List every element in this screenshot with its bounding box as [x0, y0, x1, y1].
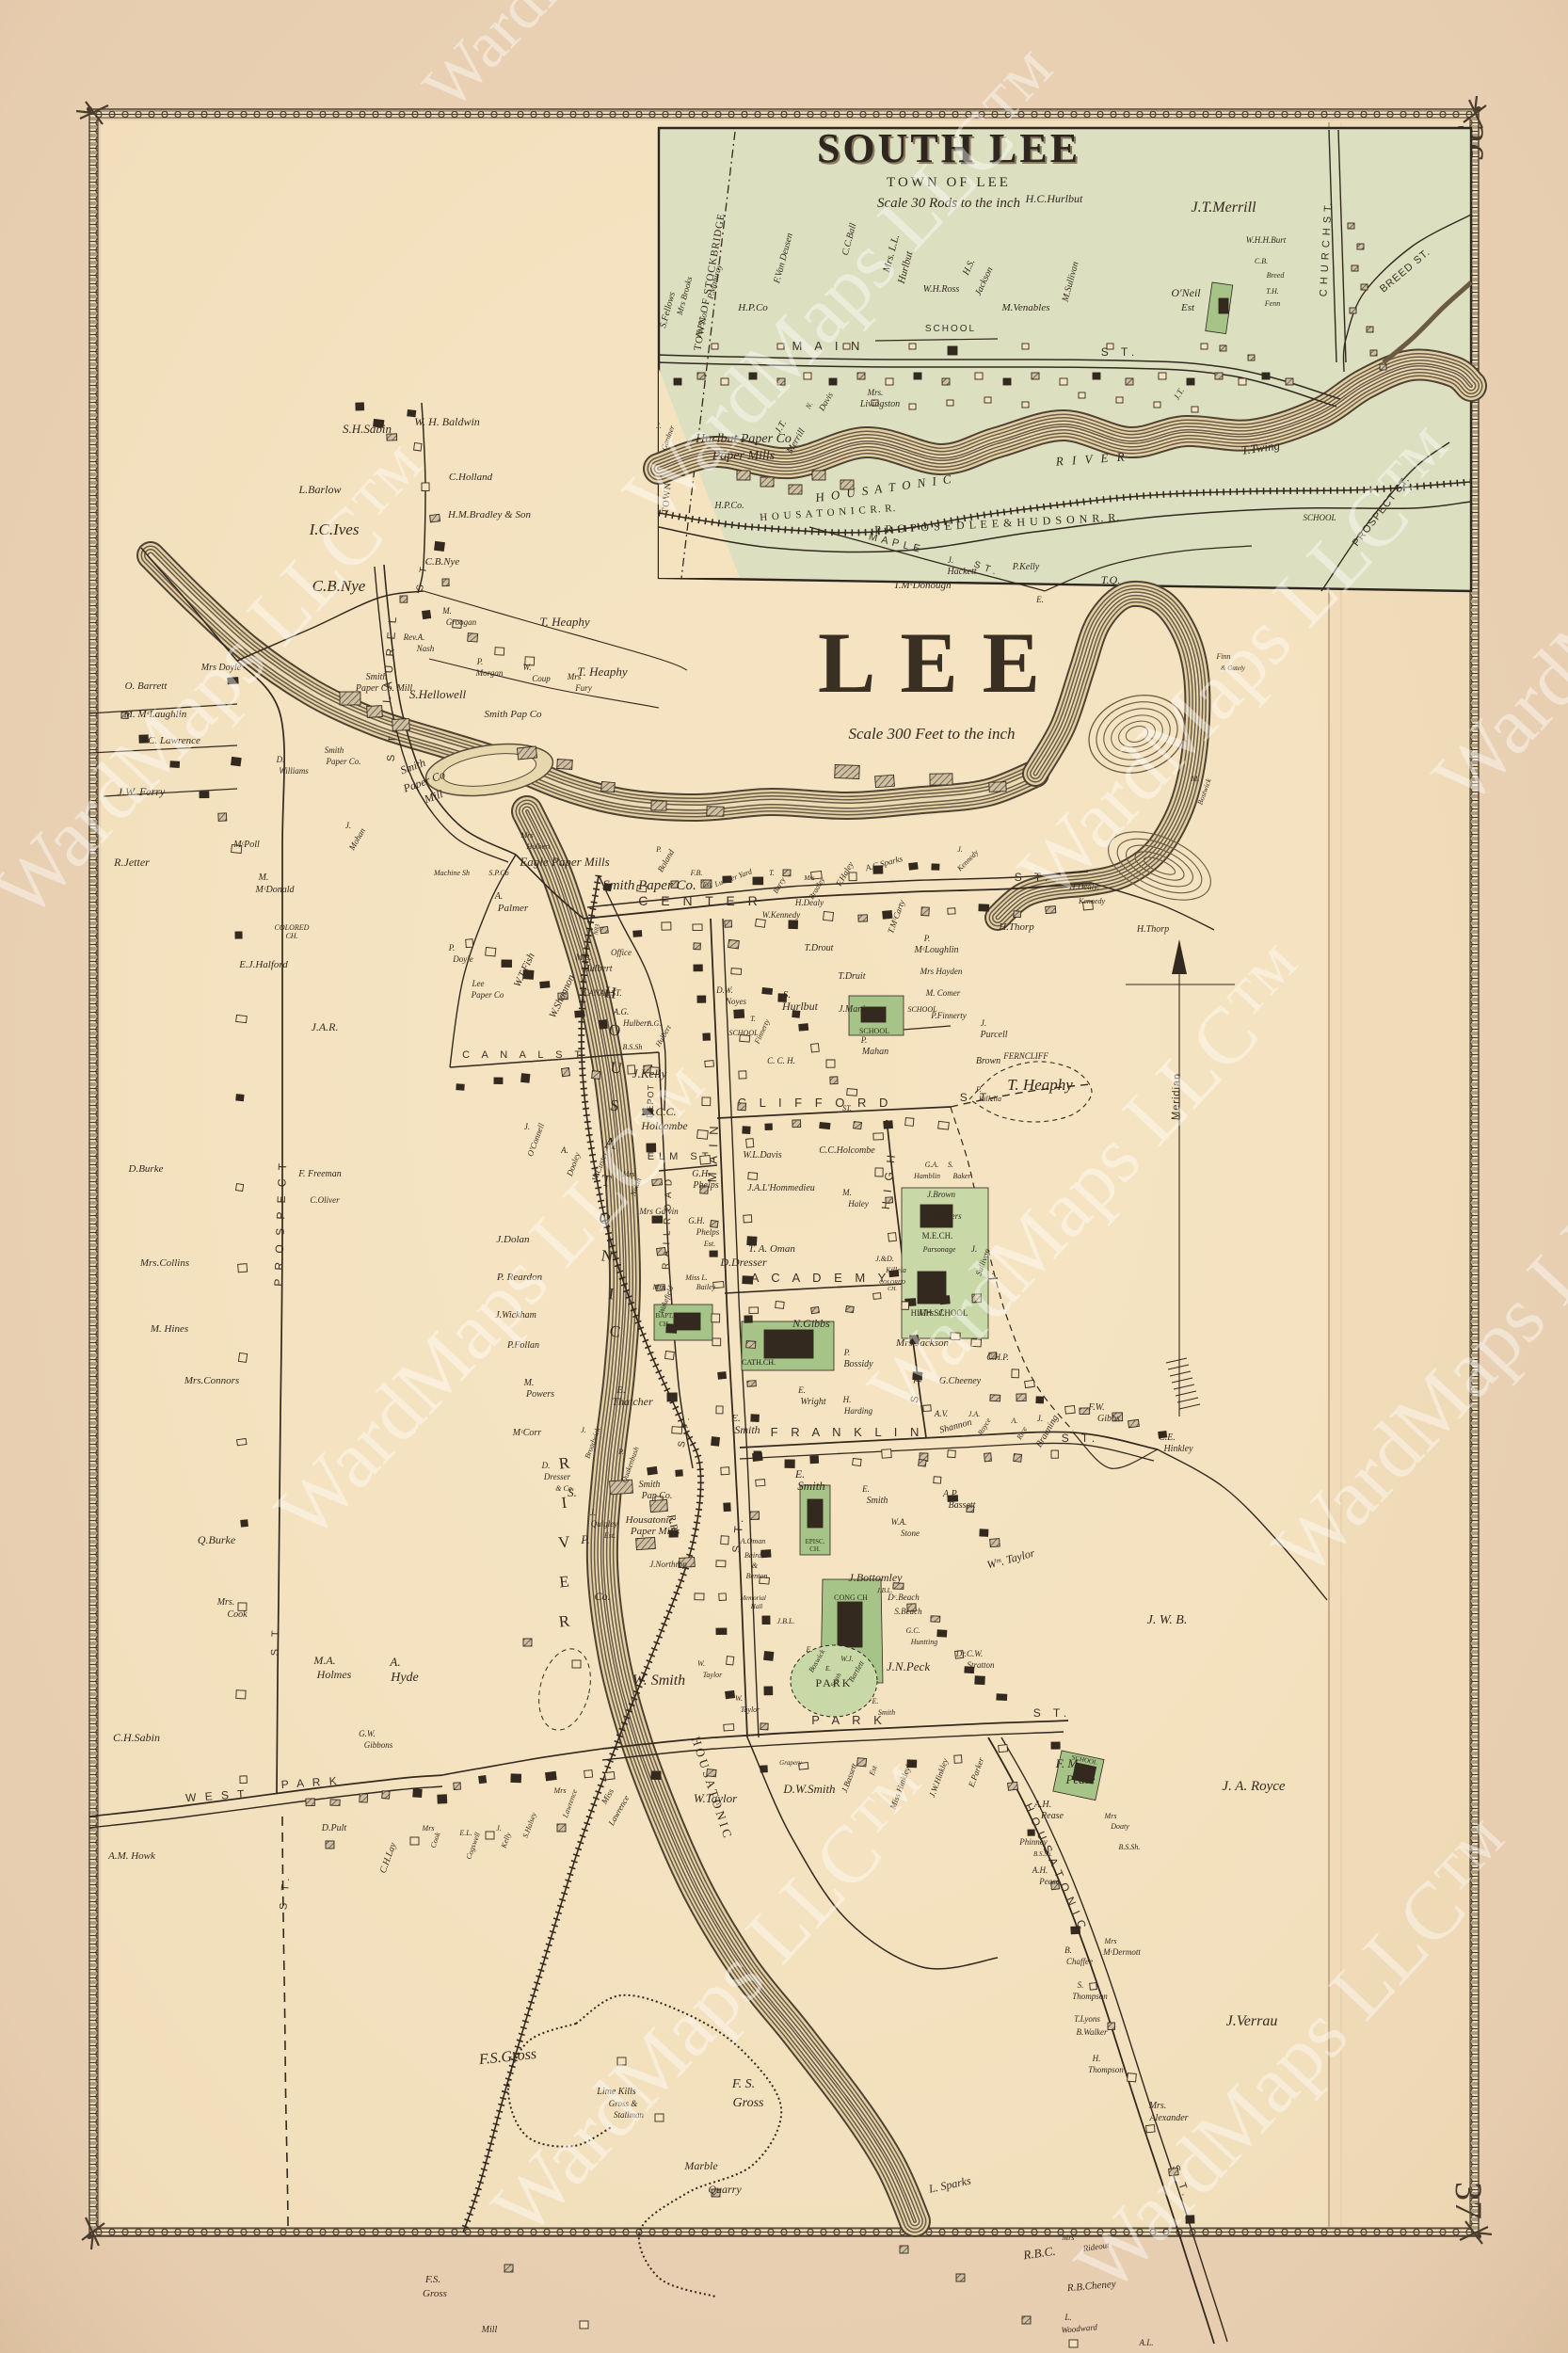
- svg-text:A.Oman: A.Oman: [740, 1537, 765, 1545]
- svg-text:C.C.Holcombe: C.C.Holcombe: [819, 1145, 875, 1156]
- svg-text:CATH.CH.: CATH.CH.: [742, 1358, 776, 1367]
- svg-text:Mrs: Mrs: [422, 1824, 435, 1833]
- svg-text:M.E.CH.: M.E.CH.: [922, 1231, 953, 1241]
- svg-text:F.S.: F.S.: [424, 2274, 440, 2285]
- svg-text:J.: J.: [948, 555, 953, 565]
- svg-text:J.&D.: J.&D.: [875, 1255, 894, 1263]
- svg-text:Co.: Co.: [594, 1590, 610, 1603]
- svg-text:MᶜDermott: MᶜDermott: [1102, 1947, 1141, 1957]
- svg-text:Williams: Williams: [279, 766, 309, 776]
- svg-text:&: &: [752, 1561, 759, 1570]
- svg-text:Cook: Cook: [227, 1609, 248, 1620]
- svg-text:B.: B.: [1064, 1945, 1072, 1955]
- svg-text:S.Meyers: S.Meyers: [930, 1211, 962, 1221]
- svg-text:P.Kelly: P.Kelly: [1012, 562, 1040, 572]
- svg-text:A.H.: A.H.: [1032, 1865, 1048, 1875]
- svg-text:D.W.Smith: D.W.Smith: [782, 1782, 835, 1796]
- svg-text:Killela: Killela: [885, 1266, 906, 1274]
- svg-text:Fenn: Fenn: [1264, 299, 1280, 308]
- svg-text:D.Dresser: D.Dresser: [719, 1256, 767, 1269]
- svg-text:A.: A.: [389, 1655, 400, 1669]
- svg-text:P.: P.: [860, 1035, 868, 1045]
- svg-text:EPISC.: EPISC.: [806, 1538, 825, 1545]
- svg-text:C L I F F O R D: C L I F F O R D: [738, 1096, 893, 1110]
- svg-text:W.L.Davis: W.L.Davis: [743, 1150, 781, 1160]
- svg-text:Baird: Baird: [744, 1551, 762, 1560]
- svg-text:MᶜDonald: MᶜDonald: [255, 885, 296, 895]
- svg-text:Harding: Harding: [843, 1406, 873, 1416]
- svg-text:Dresser: Dresser: [543, 1472, 571, 1481]
- svg-text:T.Druit: T.Druit: [839, 971, 866, 982]
- svg-text:Stone: Stone: [901, 1529, 920, 1538]
- svg-text:F R A N K L I N: F R A N K L I N: [771, 1425, 924, 1439]
- svg-text:W.A.: W.A.: [891, 1517, 907, 1527]
- svg-text:S T.: S T.: [1062, 1432, 1099, 1445]
- svg-text:C.E.: C.E.: [1159, 1433, 1176, 1443]
- svg-text:E.: E.: [1035, 595, 1044, 604]
- svg-text:S.: S.: [948, 1160, 953, 1169]
- svg-text:O: O: [608, 1020, 622, 1040]
- svg-text:P.: P.: [843, 1348, 851, 1357]
- svg-text:Baker: Baker: [952, 1172, 971, 1180]
- svg-text:Est.: Est.: [703, 1240, 715, 1248]
- svg-text:E: E: [558, 1573, 569, 1592]
- svg-text:MᶜPoll: MᶜPoll: [232, 840, 260, 850]
- svg-text:Killella: Killella: [978, 1095, 1001, 1103]
- svg-text:E.: E.: [797, 1385, 806, 1395]
- svg-text:Mrs.: Mrs.: [575, 952, 592, 962]
- svg-text:Smith: Smith: [734, 1423, 760, 1436]
- svg-text:Phelps: Phelps: [696, 1227, 720, 1237]
- svg-text:Paper Co: Paper Co: [471, 990, 504, 1000]
- svg-text:E.: E.: [824, 1665, 831, 1673]
- svg-text:Hinkley: Hinkley: [1162, 1444, 1193, 1454]
- svg-text:T. Heaphy: T. Heaphy: [539, 615, 589, 629]
- svg-text:Q.Burke: Q.Burke: [198, 1533, 236, 1546]
- svg-text:Hamblin: Hamblin: [913, 1172, 940, 1180]
- svg-text:Paper Mills: Paper Mills: [630, 1526, 680, 1537]
- svg-text:M.Venables: M.Venables: [1000, 302, 1049, 313]
- svg-text:Brown: Brown: [976, 1056, 1000, 1066]
- svg-text:T.Q.: T.Q.: [1101, 573, 1120, 586]
- svg-text:P.: P.: [923, 934, 931, 943]
- svg-text:Mrs.: Mrs.: [1148, 2101, 1167, 2111]
- svg-text:G.H.: G.H.: [692, 1169, 710, 1179]
- svg-text:Hackett: Hackett: [946, 567, 976, 577]
- svg-text:Mrs.Collins: Mrs.Collins: [139, 1257, 189, 1269]
- svg-text:W. Smith: W. Smith: [632, 1673, 685, 1689]
- svg-text:E.: E.: [861, 1484, 870, 1494]
- svg-text:J.A.R.: J.A.R.: [312, 1020, 339, 1033]
- svg-text:A.G.: A.G.: [647, 1019, 662, 1028]
- svg-text:J.N.Peck: J.N.Peck: [887, 1659, 930, 1673]
- svg-text:Hulbert: Hulbert: [622, 1018, 649, 1028]
- svg-text:J.A.: J.A.: [968, 1410, 980, 1418]
- svg-text:Livingston: Livingston: [859, 399, 900, 409]
- svg-text:Haley: Haley: [847, 1199, 869, 1209]
- svg-text:Parsonage: Parsonage: [922, 1245, 956, 1254]
- svg-text:Purcell: Purcell: [979, 1030, 1007, 1040]
- svg-text:Smith: Smith: [878, 1708, 895, 1717]
- svg-text:S.P.Co: S.P.Co: [488, 869, 508, 877]
- svg-text:Benton: Benton: [746, 1572, 768, 1580]
- svg-text:J.: J.: [581, 1426, 586, 1434]
- svg-text:SCHOOL: SCHOOL: [925, 324, 976, 334]
- svg-text:H.: H.: [842, 1395, 852, 1404]
- svg-text:O'Neil: O'Neil: [1171, 286, 1201, 299]
- svg-text:B.Walker: B.Walker: [1077, 2027, 1108, 2037]
- svg-text:J. A. Royce: J. A. Royce: [1222, 1779, 1286, 1794]
- svg-text:H.P.Co.: H.P.Co.: [713, 501, 744, 511]
- svg-text:Eagle Paper Mills: Eagle Paper Mills: [519, 855, 609, 869]
- svg-text:F.W.: F.W.: [1087, 1402, 1104, 1413]
- svg-text:Thompson: Thompson: [1088, 2065, 1124, 2074]
- svg-text:Est.: Est.: [702, 881, 713, 888]
- svg-text:T. Heaphy: T. Heaphy: [577, 664, 627, 679]
- svg-text:G.W.: G.W.: [359, 1729, 376, 1738]
- svg-text:M.: M.: [841, 1188, 852, 1197]
- svg-text:Hulbert: Hulbert: [582, 964, 612, 974]
- svg-text:Machine Sh: Machine Sh: [433, 869, 470, 877]
- svg-text:Taylor: Taylor: [741, 1705, 760, 1714]
- svg-text:M.: M.: [258, 872, 269, 883]
- svg-text:Hulbert: Hulbert: [526, 842, 552, 851]
- svg-text:F. M.: F. M.: [1055, 1756, 1081, 1770]
- svg-text:Quigley: Quigley: [591, 1519, 618, 1529]
- svg-text:Mrs.Connors: Mrs.Connors: [184, 1375, 239, 1386]
- svg-text:J.T.Merrill: J.T.Merrill: [1191, 200, 1256, 216]
- svg-text:Palmer: Palmer: [497, 903, 529, 914]
- svg-text:G.C.: G.C.: [905, 1626, 920, 1635]
- svg-text:F.B.: F.B.: [690, 869, 703, 877]
- svg-text:ST.: ST.: [842, 1104, 852, 1112]
- svg-text:MᶜCorr: MᶜCorr: [512, 1428, 542, 1438]
- svg-text:FERNCLIFF: FERNCLIFF: [1002, 1051, 1048, 1061]
- svg-text:Doaty: Doaty: [1110, 1822, 1129, 1831]
- svg-text:E.L.: E.L.: [458, 1829, 472, 1837]
- svg-text:A.G.: A.G.: [613, 1007, 630, 1016]
- svg-text:P.: P.: [476, 657, 484, 666]
- svg-text:J.B.L.: J.B.L.: [777, 1617, 795, 1625]
- svg-text:P.: P.: [448, 943, 456, 952]
- svg-text:Bailey: Bailey: [696, 1283, 716, 1291]
- svg-text:SCHOOL: SCHOOL: [728, 1029, 759, 1037]
- svg-text:W.H.H.Burt: W.H.H.Burt: [1246, 235, 1287, 245]
- svg-text:G.A.: G.A.: [925, 1160, 939, 1169]
- svg-text:Nash: Nash: [416, 644, 435, 653]
- svg-text:T.: T.: [750, 1015, 756, 1023]
- svg-text:H.Dealy: H.Dealy: [794, 898, 824, 907]
- svg-text:A.M. Howk: A.M. Howk: [107, 1850, 156, 1862]
- svg-text:G.H.: G.H.: [688, 1216, 705, 1225]
- svg-text:W.: W.: [523, 663, 532, 672]
- svg-text:Smith Pap Co: Smith Pap Co: [484, 709, 542, 720]
- svg-text:J.Bottomley: J.Bottomley: [849, 1571, 904, 1584]
- svg-text:Phelps: Phelps: [692, 1180, 718, 1191]
- svg-text:Thompson: Thompson: [1072, 1992, 1108, 2001]
- svg-text:Lee: Lee: [472, 979, 485, 988]
- svg-text:C.H.Sabin: C.H.Sabin: [113, 1731, 160, 1744]
- svg-text:D.Burke: D.Burke: [128, 1163, 164, 1175]
- svg-text:W.Kennedy: W.Kennedy: [762, 910, 800, 920]
- svg-text:Mrs: Mrs: [803, 874, 815, 882]
- svg-text:S T.: S T.: [269, 1619, 281, 1656]
- svg-text:J. W. B.: J. W. B.: [1147, 1613, 1188, 1627]
- svg-text:T.Drout: T.Drout: [805, 943, 834, 953]
- svg-text:D.Pult: D.Pult: [321, 1823, 347, 1833]
- svg-text:J.Northrop: J.Northrop: [649, 1560, 687, 1569]
- svg-text:A.H.: A.H.: [1033, 1800, 1051, 1810]
- svg-text:A.: A.: [1011, 1417, 1018, 1425]
- svg-text:M.A.: M.A.: [312, 1654, 335, 1667]
- svg-text:Dr.C.W.: Dr.C.W.: [955, 1649, 984, 1658]
- svg-text:H.Thorp: H.Thorp: [1136, 924, 1169, 935]
- svg-text:Taylor: Taylor: [703, 1671, 723, 1679]
- svg-text:C.B.Nye: C.B.Nye: [425, 556, 460, 568]
- svg-text:Smith: Smith: [325, 745, 344, 755]
- svg-text:W.H.Ross: W.H.Ross: [923, 284, 960, 295]
- svg-text:H.M.Bradley & Son: H.M.Bradley & Son: [447, 509, 531, 520]
- svg-text:S T.: S T.: [1033, 1706, 1071, 1720]
- svg-text:D.: D.: [276, 755, 285, 764]
- svg-text:C.Holland: C.Holland: [449, 472, 493, 483]
- svg-text:Mrs: Mrs: [553, 1786, 567, 1795]
- svg-text:Stratton: Stratton: [967, 1660, 995, 1670]
- svg-text:J.: J.: [345, 821, 351, 830]
- svg-text:B.S.Sh: B.S.Sh: [623, 1043, 643, 1051]
- svg-text:P.: P.: [580, 1532, 590, 1546]
- svg-text:F. Freeman: F. Freeman: [297, 1169, 342, 1179]
- svg-text:LEE: LEE: [818, 615, 1064, 711]
- svg-text:C A N A L S T.: C A N A L S T.: [462, 1049, 592, 1061]
- svg-text:Housatonic: Housatonic: [625, 1514, 674, 1526]
- svg-text:M.: M.: [441, 606, 452, 616]
- svg-text:H.: H.: [1092, 2054, 1101, 2063]
- svg-text:F. S.: F. S.: [731, 2077, 755, 2091]
- svg-text:J.: J.: [981, 1018, 986, 1028]
- svg-text:M. Hines: M. Hines: [150, 1323, 188, 1335]
- svg-text:& Co.: & Co.: [555, 1484, 574, 1493]
- svg-text:R.Jetter: R.Jetter: [113, 856, 150, 869]
- svg-text:E.: E.: [806, 1645, 813, 1654]
- svg-text:A.: A.: [494, 891, 504, 902]
- svg-text:T.: T.: [769, 869, 775, 877]
- svg-text:Pease: Pease: [1064, 1772, 1095, 1786]
- svg-text:J.Brown: J.Brown: [927, 1190, 955, 1199]
- svg-text:W.Taylor: W.Taylor: [694, 1791, 738, 1805]
- svg-text:Thatcher: Thatcher: [612, 1395, 653, 1408]
- svg-text:B.S.Sh.: B.S.Sh.: [1119, 1843, 1141, 1851]
- svg-text:CH.: CH.: [285, 932, 297, 940]
- svg-text:C.B.: C.B.: [1255, 257, 1268, 265]
- svg-text:Breed: Breed: [1267, 271, 1286, 280]
- svg-text:Est.: Est.: [603, 1531, 616, 1540]
- svg-text:Holmes: Holmes: [316, 1668, 352, 1681]
- svg-text:Pease: Pease: [1040, 1811, 1064, 1821]
- svg-text:37: 37: [1448, 2182, 1490, 2219]
- svg-text:T.MᶜDonough: T.MᶜDonough: [893, 580, 952, 591]
- svg-text:Mrs: Mrs: [652, 1283, 665, 1291]
- svg-text:Miss L.: Miss L.: [684, 1273, 708, 1282]
- svg-text:Smith: Smith: [867, 1496, 888, 1506]
- svg-text:A.: A.: [560, 1145, 568, 1155]
- svg-text:Gross: Gross: [423, 2288, 447, 2299]
- svg-text:Scale 300 Feet to the inch: Scale 300 Feet to the inch: [848, 725, 1015, 743]
- svg-text:N.Gibbs: N.Gibbs: [792, 1317, 830, 1330]
- svg-text:D.W.: D.W.: [715, 985, 733, 995]
- svg-text:L.: L.: [1064, 2313, 1071, 2322]
- svg-text:Hurlbut: Hurlbut: [781, 1000, 819, 1013]
- svg-text:D.: D.: [541, 1461, 551, 1470]
- svg-text:Marble: Marble: [683, 2159, 718, 2172]
- svg-text:T. Heaphy: T. Heaphy: [1007, 1076, 1073, 1094]
- svg-text:S.Beach: S.Beach: [894, 1607, 922, 1616]
- svg-text:Office: Office: [611, 948, 632, 957]
- svg-text:M.: M.: [523, 1378, 535, 1388]
- svg-text:A.P.: A.P.: [942, 1489, 958, 1499]
- svg-text:H.Thorp: H.Thorp: [998, 921, 1034, 933]
- svg-text:J.: J.: [957, 845, 963, 854]
- svg-text:Gibbons: Gibbons: [364, 1740, 393, 1750]
- svg-text:Quarry: Quarry: [708, 2183, 742, 2196]
- svg-text:A C A D E M Y: A C A D E M Y: [751, 1271, 891, 1285]
- svg-text:P.: P.: [975, 1085, 982, 1094]
- svg-text:J.A.L'Hommedieu: J.A.L'Hommedieu: [747, 1183, 815, 1193]
- svg-text:Groogan: Groogan: [446, 617, 477, 627]
- svg-text:CH.: CH.: [809, 1545, 821, 1553]
- svg-text:Mrs.: Mrs.: [216, 1597, 235, 1608]
- svg-text:Hyde: Hyde: [390, 1671, 419, 1685]
- svg-text:Phinney: Phinney: [1018, 1837, 1048, 1847]
- svg-text:C.Oliver: C.Oliver: [310, 1195, 340, 1205]
- svg-text:Smith: Smith: [639, 1480, 661, 1490]
- svg-text:E.: E.: [872, 1697, 879, 1705]
- svg-text:Morgan: Morgan: [475, 668, 504, 678]
- svg-text:Pease: Pease: [1038, 1877, 1060, 1886]
- svg-text:Hall: Hall: [750, 1603, 763, 1610]
- svg-text:Grapery: Grapery: [779, 1759, 803, 1767]
- svg-text:Wright: Wright: [800, 1397, 825, 1407]
- svg-text:Chaffee: Chaffee: [1066, 1957, 1093, 1966]
- svg-text:S.: S.: [1078, 1980, 1084, 1990]
- svg-text:W.: W.: [735, 1694, 743, 1703]
- svg-text:COLORED: COLORED: [879, 1280, 905, 1286]
- svg-text:COLORED: COLORED: [275, 923, 310, 932]
- svg-text:P.: P.: [655, 845, 662, 854]
- svg-text:E.J.Halford: E.J.Halford: [238, 959, 288, 970]
- svg-text:Gibbs: Gibbs: [1097, 1414, 1120, 1424]
- svg-text:Mrs: Mrs: [520, 831, 534, 840]
- svg-text:S.Hellowell: S.Hellowell: [409, 687, 467, 701]
- svg-text:T.H.: T.H.: [1266, 287, 1279, 296]
- svg-text:Mill: Mill: [481, 2325, 498, 2335]
- svg-text:Bassett: Bassett: [949, 1500, 976, 1511]
- svg-text:W.J.: W.J.: [840, 1655, 853, 1663]
- svg-text:M. Comer: M. Comer: [925, 988, 961, 998]
- svg-text:CONG CH: CONG CH: [834, 1593, 868, 1602]
- svg-text:J.: J.: [524, 1122, 530, 1131]
- svg-text:CH.: CH.: [888, 1287, 897, 1292]
- svg-text:Rev.A.: Rev.A.: [403, 632, 425, 642]
- svg-text:Mrs Hayden: Mrs Hayden: [920, 967, 963, 976]
- svg-text:Smith Paper Co.: Smith Paper Co.: [602, 878, 696, 893]
- svg-text:J.B.L.: J.B.L.: [877, 1587, 893, 1594]
- svg-text:Powers: Powers: [525, 1389, 554, 1400]
- svg-text:Mrs: Mrs: [1104, 1937, 1117, 1945]
- svg-text:Mrs: Mrs: [567, 672, 582, 681]
- svg-text:C. C. H.: C. C. H.: [767, 1056, 795, 1065]
- svg-text:Est: Est: [1180, 302, 1195, 313]
- svg-text:Pap Co.: Pap Co.: [641, 1491, 673, 1501]
- svg-text:U: U: [609, 1058, 623, 1078]
- svg-text:J.: J.: [1037, 1414, 1043, 1423]
- svg-text:A.L.: A.L.: [1138, 2338, 1153, 2347]
- svg-text:Huntting: Huntting: [910, 1638, 937, 1646]
- svg-text:Coup: Coup: [532, 674, 551, 683]
- svg-text:SCHOOL: SCHOOL: [859, 1027, 889, 1035]
- svg-text:Doyle: Doyle: [452, 954, 473, 964]
- svg-text:J.Manion: J.Manion: [839, 1004, 874, 1015]
- svg-text:Mrs.: Mrs.: [867, 388, 884, 397]
- svg-text:T.Lyons: T.Lyons: [1074, 2014, 1100, 2024]
- svg-text:Mrs: Mrs: [1104, 1812, 1117, 1820]
- svg-text:CANAL ST.: CANAL ST.: [583, 988, 621, 998]
- svg-text:Memorial: Memorial: [739, 1594, 766, 1602]
- svg-text:Mahan: Mahan: [861, 1047, 888, 1057]
- svg-text:B.S.Sh.: B.S.Sh.: [1033, 1850, 1052, 1858]
- svg-text:T. A. Oman: T. A. Oman: [748, 1243, 795, 1255]
- svg-text:Smith: Smith: [366, 672, 388, 682]
- svg-text:H.C.Hurlbut: H.C.Hurlbut: [1025, 192, 1083, 205]
- svg-text:P.Finnerty: P.Finnerty: [930, 1011, 967, 1020]
- svg-text:P.: P.: [617, 1448, 624, 1456]
- svg-text:Fury: Fury: [574, 683, 592, 693]
- svg-text:J.: J.: [590, 1508, 596, 1517]
- svg-text:W.: W.: [697, 1659, 705, 1668]
- svg-text:MᶜLoughlin: MᶜLoughlin: [913, 945, 958, 955]
- svg-text:Paper Co. Mill: Paper Co. Mill: [355, 683, 412, 694]
- svg-text:Smith: Smith: [797, 1479, 825, 1493]
- svg-text:Gross: Gross: [733, 2096, 764, 2110]
- svg-text:Noyes: Noyes: [725, 997, 746, 1006]
- svg-text:Paper Co.: Paper Co.: [326, 757, 361, 766]
- svg-text:C E N T E R: C E N T E R: [638, 893, 762, 908]
- svg-text:W. H. Baldwin: W. H. Baldwin: [414, 415, 480, 428]
- svg-text:J.: J.: [496, 1824, 502, 1833]
